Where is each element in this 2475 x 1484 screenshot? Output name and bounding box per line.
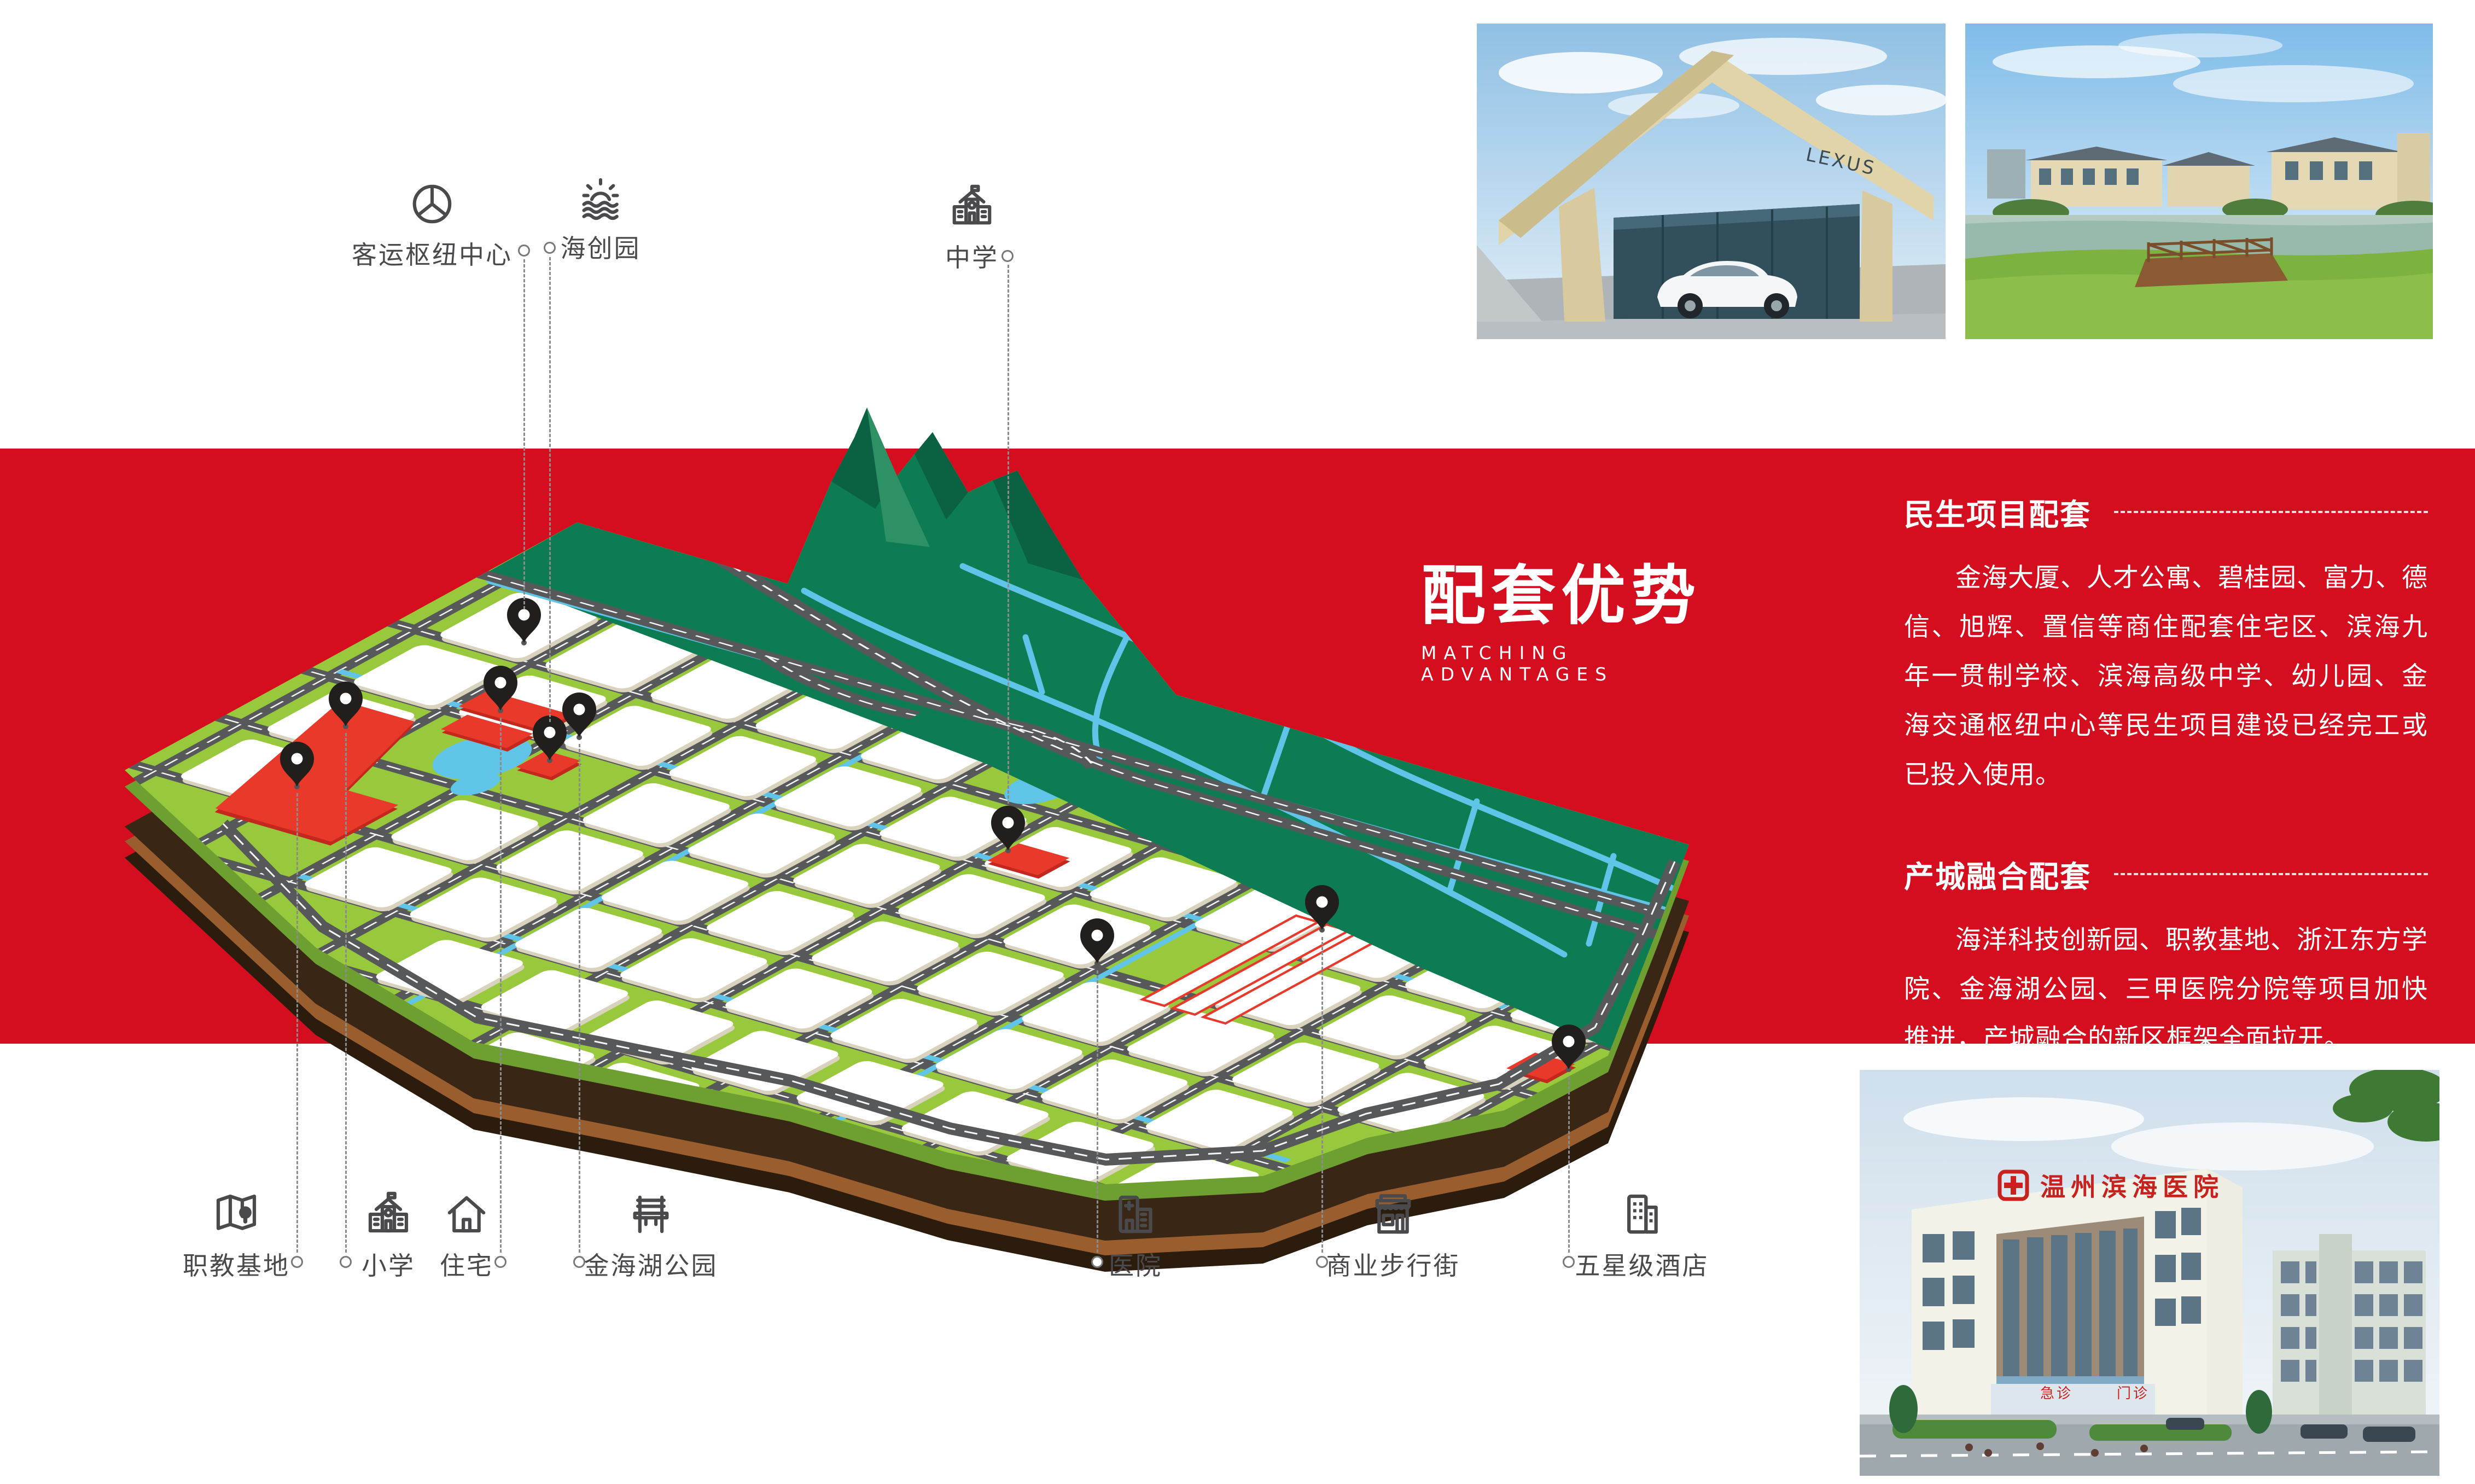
section-heading: 产城融合配套 xyxy=(1904,852,2091,896)
label-text: 小学 xyxy=(362,1246,415,1282)
label-text: 海创园 xyxy=(561,229,641,265)
leader-middle-school xyxy=(1008,265,1009,804)
leader-lake-park xyxy=(579,744,580,1253)
photo-hospital: 温州滨海医院 急诊 门诊 xyxy=(1860,1070,2439,1476)
label-text: 职教基地 xyxy=(183,1246,290,1282)
page-title: 配套优势 xyxy=(1421,563,1771,628)
leader-haichuang xyxy=(549,257,551,722)
leader-primary xyxy=(345,733,347,1253)
label-text: 金海湖公园 xyxy=(584,1246,718,1282)
label-pedestrian-street: 商业步行街 xyxy=(1311,1190,1475,1282)
label-middle-school: 中学 xyxy=(917,183,1027,274)
label-residence: 住宅 xyxy=(417,1190,516,1282)
hospital-icon xyxy=(1111,1190,1160,1238)
dashed-rule xyxy=(2114,873,2428,875)
label-text: 商业步行街 xyxy=(1326,1246,1460,1282)
photo-dealership: LEXUS xyxy=(1477,24,1946,339)
section-body: 海洋科技创新园、职教基地、浙江东方学院、金海湖公园、三甲医院分院等项目加快推进，… xyxy=(1904,916,2428,1063)
hospital-right-wing xyxy=(2273,1234,2426,1415)
section-heading: 民生项目配套 xyxy=(1904,490,2091,534)
hero-title-block: 配套优势 MATCHING ADVANTAGES xyxy=(1421,563,1771,685)
school-icon xyxy=(948,183,995,230)
label-jinhai-lake-park: 金海湖公园 xyxy=(569,1190,733,1282)
label-text: 医院 xyxy=(1109,1246,1162,1282)
hospital-sign-text: 温州滨海医院 xyxy=(2040,1172,2224,1202)
section-2-heading-row: 产城融合配套 xyxy=(1904,852,2428,896)
leader-transport-hub xyxy=(523,259,525,609)
label-text: 中学 xyxy=(945,238,999,274)
storefront-icon xyxy=(1369,1190,1417,1238)
bench-icon xyxy=(627,1190,675,1238)
label-text: 五星级酒店 xyxy=(1575,1246,1709,1282)
label-text: 客运枢纽中心 xyxy=(352,235,513,271)
page-subtitle: MATCHING ADVANTAGES xyxy=(1421,642,1771,685)
label-vocational-base: 职教基地 xyxy=(154,1190,318,1282)
leader-vocational xyxy=(296,793,298,1253)
poster-canvas: 客运枢纽中心 海创园 中学 职教基地 xyxy=(0,0,2475,1484)
label-text: 住宅 xyxy=(440,1246,493,1282)
dashed-rule xyxy=(2114,511,2428,513)
label-hospital: 医院 xyxy=(1086,1190,1185,1282)
house-icon xyxy=(442,1190,491,1238)
entrance-sign-left: 急诊 xyxy=(2040,1386,2073,1402)
section-1-heading-row: 民生项目配套 xyxy=(1904,490,2428,534)
label-transport-hub: 客运枢纽中心 xyxy=(350,181,514,271)
copy-column: 民生项目配套 金海大厦、人才公寓、碧桂园、富力、德信、旭辉、置信等商住配套住宅区… xyxy=(1904,490,2428,1063)
entrance-sign-right: 门诊 xyxy=(2117,1386,2150,1402)
section-body: 金海大厦、人才公寓、碧桂园、富力、德信、旭辉、置信等商住配套住宅区、滨海九年一贯… xyxy=(1904,554,2428,800)
label-hotel: 五星级酒店 xyxy=(1560,1190,1724,1282)
hospital-main-building xyxy=(1912,1168,2243,1415)
map-pin-icon xyxy=(212,1190,260,1238)
hotel-icon xyxy=(1618,1190,1666,1238)
label-haichuang: 海创园 xyxy=(540,174,661,265)
photo-lake-park xyxy=(1965,24,2433,339)
school-icon xyxy=(364,1190,412,1238)
node-transport-hub xyxy=(518,245,530,257)
leader-residence xyxy=(500,718,502,1253)
sun-waves-icon xyxy=(577,174,624,221)
transport-hub-icon xyxy=(409,181,456,228)
